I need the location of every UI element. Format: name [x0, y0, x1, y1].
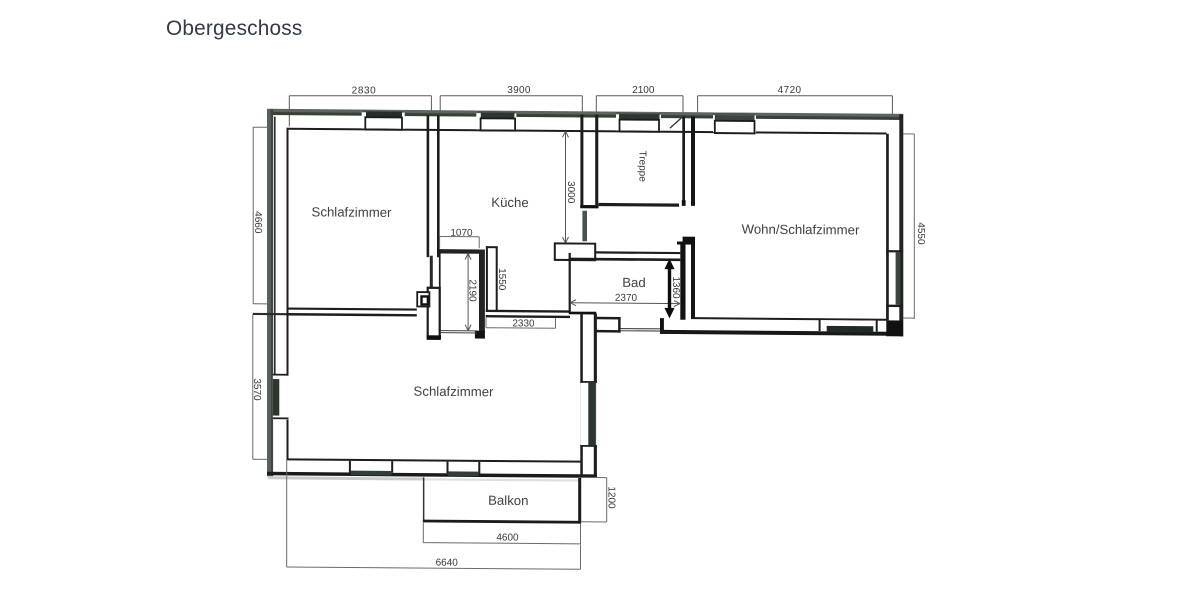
svg-text:1550: 1550	[496, 268, 507, 291]
svg-text:2330: 2330	[512, 318, 535, 329]
svg-text:Treppe: Treppe	[637, 150, 648, 182]
svg-text:Schlafzimmer: Schlafzimmer	[312, 204, 392, 220]
svg-text:2830: 2830	[352, 85, 377, 96]
svg-text:3570: 3570	[251, 378, 262, 401]
svg-text:2190: 2190	[466, 279, 477, 302]
svg-text:Bad: Bad	[622, 275, 645, 290]
svg-text:Balkon: Balkon	[488, 493, 528, 508]
svg-text:1360: 1360	[670, 276, 681, 299]
svg-text:4660: 4660	[252, 211, 263, 234]
svg-text:6640: 6640	[436, 558, 459, 569]
svg-text:Schlafzimmer: Schlafzimmer	[414, 384, 494, 400]
svg-text:2100: 2100	[632, 85, 655, 96]
svg-text:1070: 1070	[450, 228, 473, 239]
svg-text:3900: 3900	[507, 85, 531, 96]
svg-text:3000: 3000	[565, 181, 576, 204]
svg-text:Küche: Küche	[491, 195, 528, 210]
svg-text:2370: 2370	[615, 293, 638, 304]
svg-text:1200: 1200	[606, 486, 617, 509]
svg-text:Obergeschoss: Obergeschoss	[166, 17, 303, 40]
svg-text:Wohn/Schlafzimmer: Wohn/Schlafzimmer	[742, 222, 860, 238]
svg-text:4720: 4720	[778, 85, 802, 96]
svg-text:4600: 4600	[496, 532, 519, 543]
svg-text:4550: 4550	[915, 222, 926, 245]
